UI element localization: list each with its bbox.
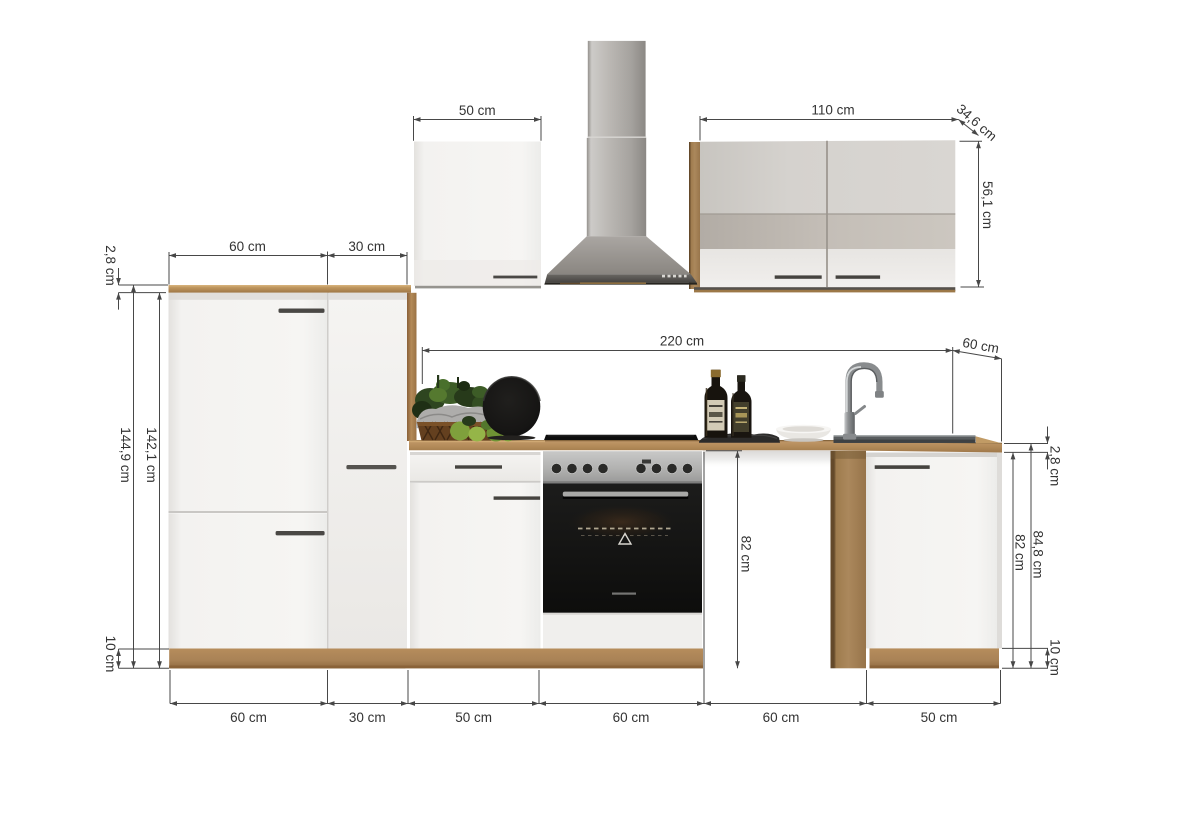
svg-text:60 cm: 60 cm <box>613 710 650 725</box>
svg-text:84,8 cm: 84,8 cm <box>1031 530 1046 578</box>
svg-text:50 cm: 50 cm <box>459 103 496 118</box>
svg-text:2,8 cm: 2,8 cm <box>1048 446 1063 487</box>
svg-text:10 cm: 10 cm <box>1048 639 1063 676</box>
svg-text:110 cm: 110 cm <box>811 103 854 118</box>
svg-text:82 cm: 82 cm <box>739 536 754 573</box>
svg-text:30 cm: 30 cm <box>348 239 385 254</box>
svg-text:60 cm: 60 cm <box>230 710 267 725</box>
svg-text:56,1 cm: 56,1 cm <box>980 181 995 229</box>
svg-text:50 cm: 50 cm <box>455 710 492 725</box>
svg-text:30 cm: 30 cm <box>349 710 386 725</box>
svg-text:142,1 cm: 142,1 cm <box>144 427 159 483</box>
svg-text:220 cm: 220 cm <box>660 334 704 349</box>
svg-text:2,8 cm: 2,8 cm <box>103 245 118 286</box>
svg-text:144,9 cm: 144,9 cm <box>118 427 133 483</box>
svg-text:82 cm: 82 cm <box>1013 534 1028 571</box>
svg-text:60 cm: 60 cm <box>229 239 266 254</box>
svg-text:10 cm: 10 cm <box>103 636 118 673</box>
svg-text:50 cm: 50 cm <box>921 710 958 725</box>
svg-text:60 cm: 60 cm <box>763 710 800 725</box>
